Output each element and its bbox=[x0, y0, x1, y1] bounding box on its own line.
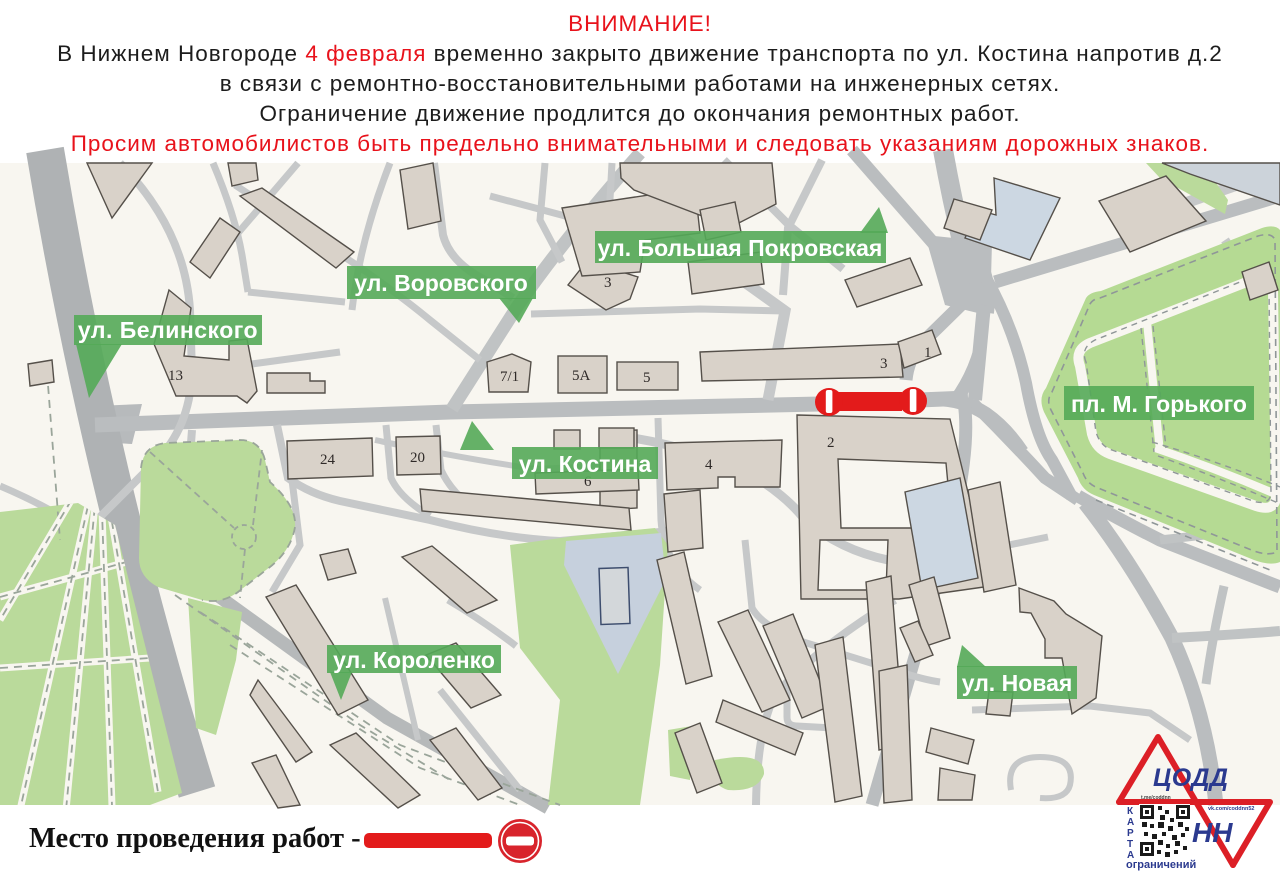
svg-text:ул. Большая Покровская: ул. Большая Покровская bbox=[598, 235, 883, 261]
svg-text:24: 24 bbox=[320, 452, 336, 468]
svg-text:3: 3 bbox=[604, 275, 612, 291]
svg-text:5: 5 bbox=[643, 370, 651, 386]
svg-text:Т: Т bbox=[1127, 839, 1133, 850]
svg-text:ограничений: ограничений bbox=[1126, 859, 1196, 871]
svg-text:4: 4 bbox=[705, 457, 713, 473]
svg-text:Р: Р bbox=[1127, 828, 1134, 839]
svg-text:ул. Воровского: ул. Воровского bbox=[354, 270, 528, 296]
svg-text:3: 3 bbox=[880, 356, 888, 372]
svg-text:ЦОДД: ЦОДД bbox=[1153, 764, 1228, 792]
svg-text:5А: 5А bbox=[572, 368, 591, 384]
svg-text:ул. Новая: ул. Новая bbox=[962, 670, 1073, 696]
svg-text:vk.com/coddnn52: vk.com/coddnn52 bbox=[1208, 806, 1254, 812]
svg-text:К: К bbox=[1127, 806, 1134, 817]
svg-text:НН: НН bbox=[1192, 817, 1233, 848]
svg-text:t.me/coddnn: t.me/coddnn bbox=[1141, 795, 1171, 801]
svg-text:пл. М. Горького: пл. М. Горького bbox=[1071, 391, 1247, 417]
svg-text:13: 13 bbox=[168, 368, 183, 384]
svg-text:ул. Короленко: ул. Короленко bbox=[333, 647, 495, 673]
svg-text:1: 1 bbox=[924, 345, 932, 361]
svg-text:7/1: 7/1 bbox=[500, 369, 519, 385]
svg-text:20: 20 bbox=[410, 450, 425, 466]
svg-text:А: А bbox=[1127, 817, 1134, 828]
svg-text:ул. Костина: ул. Костина bbox=[519, 451, 652, 477]
svg-text:2: 2 bbox=[827, 435, 835, 451]
svg-text:ул. Белинского: ул. Белинского bbox=[78, 317, 258, 343]
